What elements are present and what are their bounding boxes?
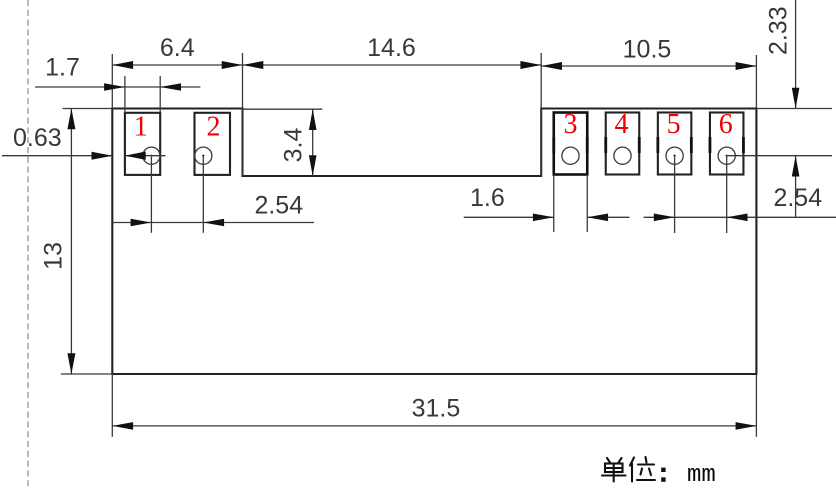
- svg-text:1: 1: [134, 112, 148, 143]
- svg-text:10.5: 10.5: [623, 36, 672, 64]
- svg-text:0.63: 0.63: [13, 124, 62, 152]
- svg-text:mm: mm: [687, 462, 716, 489]
- svg-text:2: 2: [207, 112, 221, 143]
- svg-text:2.54: 2.54: [254, 191, 303, 219]
- svg-text:3.4: 3.4: [280, 128, 308, 163]
- svg-text:13: 13: [39, 242, 67, 270]
- svg-text:3: 3: [564, 109, 578, 140]
- svg-text:6.4: 6.4: [160, 34, 195, 62]
- svg-text:4: 4: [615, 109, 629, 140]
- svg-text:6: 6: [719, 109, 733, 140]
- svg-text:1.6: 1.6: [470, 184, 505, 212]
- svg-text:14.6: 14.6: [367, 34, 416, 62]
- svg-text:31.5: 31.5: [412, 395, 461, 423]
- svg-text:5: 5: [667, 109, 681, 140]
- svg-text:2.54: 2.54: [773, 184, 822, 212]
- svg-text:2.33: 2.33: [765, 6, 793, 55]
- svg-text:1.7: 1.7: [45, 53, 80, 81]
